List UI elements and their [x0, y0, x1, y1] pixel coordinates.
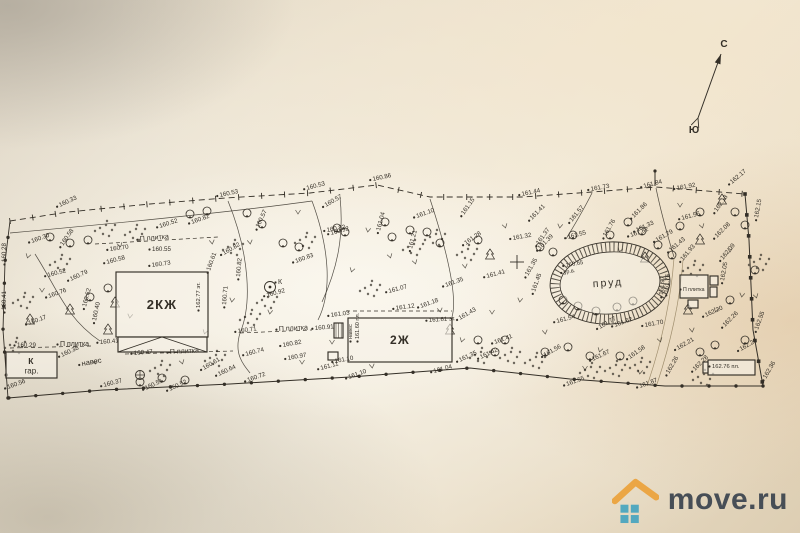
grass-mark: [229, 298, 235, 303]
elevation-label: 161.12: [395, 302, 415, 312]
shrub-dot: [373, 295, 375, 297]
move-ru-watermark: move.ru: [612, 476, 788, 524]
shrub-dot: [429, 236, 431, 238]
deciduous-tree-icon: [388, 233, 396, 241]
elevation-point-dot: [524, 276, 527, 279]
grass-mark: [300, 360, 305, 364]
elevation-label: 161.07: [388, 283, 409, 295]
elevation-label: 160.37: [103, 377, 124, 389]
elevation-point-dot: [442, 285, 445, 288]
shrub-dot: [709, 378, 711, 380]
shrub-dot: [535, 356, 537, 358]
elevation-label: 161.42: [479, 346, 500, 361]
shrub-dots: [424, 229, 446, 246]
elevation-point-dot: [263, 295, 266, 298]
deciduous-tree-icon: [104, 284, 112, 292]
elevation-label: 160.40: [91, 301, 102, 322]
shrub-dot: [435, 233, 437, 235]
elevation-point-dot: [4, 387, 7, 390]
grass-mark: [40, 288, 45, 292]
shrub-dot: [132, 237, 134, 239]
elevation-point-dot: [45, 296, 48, 299]
shrub-dot: [94, 230, 96, 232]
elevation-point-dot: [679, 288, 681, 290]
elevation-label: 162.21: [676, 336, 696, 352]
fence-tick: [147, 201, 148, 207]
survey-point-dot: [761, 384, 764, 387]
elevation-point-dot: [103, 262, 106, 265]
elevation-point-dot: [323, 230, 326, 233]
elevation-label: 162.26: [665, 355, 681, 375]
deciduous-tree-icon: [726, 296, 734, 304]
elevation-label: 162.55: [753, 310, 766, 331]
shrub-dot: [640, 361, 642, 363]
shrub-dot: [759, 258, 761, 260]
shrub-dot: [483, 362, 485, 364]
elevation-point-dot: [59, 246, 62, 249]
elevation-label: П плитка: [170, 347, 200, 356]
shrub-dot: [236, 254, 238, 256]
site-plan-svg: пруд2КЖ2ЖКгар.160.33160.53160.52160.8216…: [0, 0, 800, 533]
elevation-point-dot: [237, 278, 239, 280]
elevation-label: 160.76: [47, 287, 68, 300]
shrub-dot: [4, 347, 6, 349]
survey-point-dot: [277, 379, 280, 382]
elevation-label: П плитка: [140, 233, 170, 243]
elevation-point-dot: [755, 219, 758, 222]
elevation-label: 161.92: [676, 182, 696, 192]
shrub-dot: [762, 269, 764, 271]
shrub-dot: [643, 372, 645, 374]
survey-point-dot: [680, 384, 683, 387]
shrub-dot: [239, 319, 241, 321]
fence-tick: [55, 211, 56, 217]
elevation-point-dot: [244, 380, 247, 383]
elevation-point-dot: [83, 308, 86, 311]
elevation-label: 160.82: [282, 339, 302, 349]
elevation-label: 162.36: [762, 360, 778, 380]
grass-mark: [330, 340, 335, 344]
shrub-dot: [242, 243, 244, 245]
elevation-point-dot: [223, 306, 225, 308]
elevation-label: 160.58: [106, 254, 127, 266]
elevation-point-dot: [274, 281, 276, 283]
elevation-point-dot: [665, 374, 668, 377]
shrub-dot: [682, 270, 684, 272]
elevation-label: 161.11: [320, 360, 340, 372]
survey-point-dot: [492, 369, 495, 372]
grass-mark: [462, 264, 468, 269]
deciduous-tree-icon: [186, 210, 194, 218]
grass-mark: [459, 337, 465, 342]
elevation-label: 160.62: [81, 287, 93, 308]
fence-tick: [330, 188, 331, 194]
elevation-point-dot: [626, 358, 629, 361]
shrub-dot: [768, 258, 770, 260]
compass-north-label: С: [720, 39, 727, 50]
survey-point-square: [757, 359, 761, 363]
elevation-label: 161.35: [444, 276, 465, 289]
shrub-dot: [66, 263, 68, 265]
elevation-label: 161.18: [419, 297, 440, 310]
deciduous-tree-icon: [731, 208, 739, 216]
shrub-dot: [305, 236, 307, 238]
elevation-label: 160.28: [1, 243, 8, 262]
shrub-dot: [541, 361, 543, 363]
elevation-label: 160.55: [152, 246, 171, 253]
elevation-point-dot: [327, 315, 329, 317]
survey-point-dot: [1, 327, 4, 330]
elevation-point-dot: [369, 179, 372, 182]
shrub-dot: [161, 360, 163, 362]
elevation-point-dot: [653, 240, 656, 243]
elevation-point-dot: [627, 235, 630, 238]
shrub-dot: [700, 382, 702, 384]
survey-point-dot: [626, 382, 629, 385]
elevation-point-dot: [188, 222, 191, 225]
shrub-dot: [99, 227, 101, 229]
shrub-dots: [94, 220, 116, 237]
shrub-dot: [419, 248, 421, 250]
grass-mark: [267, 310, 273, 315]
grid-cross-icon: [510, 255, 524, 269]
elevation-point-dot: [148, 265, 150, 267]
shrub-dot: [587, 375, 589, 377]
elevation-label: 160.83: [294, 252, 315, 265]
shrub-dot: [649, 361, 651, 363]
shrub-dot: [166, 369, 168, 371]
elevation-point-dot: [216, 195, 219, 198]
shrub-dot: [16, 337, 18, 339]
fence-line: [745, 194, 763, 386]
elevation-point-dot: [460, 215, 463, 218]
survey-point-dot: [34, 394, 37, 397]
house-2kzh: 2КЖ: [116, 272, 208, 337]
elevation-label: 161.10: [347, 368, 368, 381]
shrub-dot: [111, 229, 113, 231]
shrub-dot: [604, 370, 606, 372]
building-outline: [710, 276, 718, 285]
elevation-label: 160.73: [151, 259, 171, 269]
elevation-point-dot: [275, 328, 277, 330]
elevation-label: 160.33: [58, 194, 79, 209]
shrub-dot: [646, 366, 648, 368]
shrub-dot: [105, 224, 107, 226]
elevation-point-dot: [322, 205, 325, 208]
elevation-label: 160.58: [59, 227, 76, 247]
survey-point-dot: [3, 282, 6, 285]
elevation-label: 160.51: [144, 377, 165, 392]
deciduous-tree-icon: [549, 248, 557, 256]
shrub-dot: [513, 362, 515, 364]
pavilion-annex-2: [710, 287, 717, 297]
survey-point-dot: [734, 384, 737, 387]
survey-point-dot: [6, 236, 9, 239]
pavilion-annex-1: [710, 276, 718, 285]
elevation-label: 161.76: [602, 218, 618, 238]
shrub-dot: [364, 287, 366, 289]
shrub-dot: [144, 228, 146, 230]
elevation-point-dot: [130, 353, 132, 355]
elevation-label: 161.93: [679, 243, 697, 262]
elevation-point-dot: [200, 368, 203, 371]
elevation-label: 161.56: [681, 210, 702, 222]
elevation-label: 160.79: [69, 268, 90, 283]
shrub-dot: [247, 322, 249, 324]
elevation-point-dot: [611, 325, 614, 328]
elevation-point-dot: [678, 218, 681, 221]
shrub-dot: [432, 242, 434, 244]
elevation-point-dot: [28, 241, 31, 244]
shrub-dot: [311, 241, 313, 243]
fence-tick: [376, 182, 377, 188]
grass-mark: [502, 223, 508, 228]
fence-tick: [32, 215, 33, 221]
shrub-dot: [510, 351, 512, 353]
shrub-dot: [12, 302, 14, 304]
grass-mark: [678, 203, 683, 207]
shrub-dot: [470, 259, 472, 261]
shrub-dot: [264, 305, 266, 307]
house-2zh-porch: [334, 323, 343, 338]
elevation-label: 161.04: [375, 211, 387, 232]
elevation-label: 161.55: [567, 229, 588, 241]
elevation-label: 161.70: [644, 319, 664, 329]
shrub-dot: [624, 364, 626, 366]
shrub-dot: [129, 231, 131, 233]
grass-mark: [296, 210, 301, 214]
shrub-dot: [141, 233, 143, 235]
compass: СЮ: [689, 39, 728, 136]
survey-point-dot: [599, 380, 602, 383]
grass-mark: [657, 337, 663, 342]
elevation-label: 161.82: [629, 226, 650, 239]
shrub-dot: [516, 356, 518, 358]
shrub-dot: [256, 318, 258, 320]
shrub-dot: [504, 354, 506, 356]
shrub-dot: [371, 280, 373, 282]
elevation-point-dot: [518, 194, 521, 197]
elevation-point-dot: [564, 237, 567, 240]
survey-point-dot: [304, 378, 307, 381]
grass-mark: [349, 267, 355, 272]
elevation-label: 161.45: [530, 272, 543, 293]
elevation-label: 161.21: [407, 229, 419, 250]
shrub-dot: [579, 372, 581, 374]
shrub-dots: [12, 292, 34, 309]
shrub-dot: [204, 360, 206, 362]
shrub-dot: [273, 301, 275, 303]
elevation-point-dot: [292, 261, 295, 264]
survey-point-dot: [61, 392, 64, 395]
elevation-label: 160.70: [109, 243, 129, 253]
shrub-dot: [367, 293, 369, 295]
elevation-point-dot: [234, 331, 236, 333]
shrub-dot: [9, 344, 11, 346]
shrub-dot: [20, 305, 22, 307]
shrub-dot: [209, 357, 211, 359]
elevation-point-dot: [477, 357, 480, 360]
elevation-label: 161.56: [543, 343, 563, 359]
elevation-point-dot: [317, 368, 320, 371]
elevation-point-dot: [602, 237, 605, 240]
elevation-point-dot: [563, 384, 566, 387]
move-ru-wordmark: move.ru: [668, 483, 788, 517]
elevation-point-dot: [215, 374, 218, 377]
shrub-dot: [464, 257, 466, 259]
elevation-label: 162.77 эт.: [196, 282, 202, 308]
shrub-dots: [499, 347, 521, 364]
elevation-label: 162.76 пл.: [712, 364, 740, 370]
shrub-dot: [259, 313, 261, 315]
elevation-point-dot: [58, 355, 61, 358]
shrub-dot: [641, 357, 643, 359]
elevation-label: 162.05: [719, 261, 729, 281]
elevation-label: 160.56: [6, 378, 27, 391]
survey-point-dot: [411, 371, 414, 374]
shrub-dot: [693, 264, 695, 266]
shrub-dot: [444, 233, 446, 235]
elevation-point-dot: [197, 309, 199, 311]
shrub-dot: [461, 251, 463, 253]
elevation-point-dot: [413, 216, 416, 219]
shrub-dot: [612, 373, 614, 375]
shrub-dot: [250, 313, 252, 315]
elevation-point-dot: [392, 308, 394, 310]
elevation-point-dot: [3, 263, 5, 265]
grass-mark: [542, 330, 548, 335]
elevation-point-dot: [702, 315, 705, 318]
elevation-label: 161.41: [528, 203, 547, 222]
deciduous-tree-icon: [616, 352, 624, 360]
elevation-point-dot: [456, 360, 459, 363]
grass-mark: [387, 253, 393, 258]
shrub-dot: [410, 252, 412, 254]
shrub-dot: [590, 366, 592, 368]
shrub-dot: [596, 371, 598, 373]
shrub-dot: [124, 234, 126, 236]
shrub-dot: [519, 351, 521, 353]
shrub-dot: [402, 249, 404, 251]
elevation-point-dot: [156, 226, 159, 229]
elevation-point-dot: [93, 322, 96, 325]
elevation-label: 161.32: [512, 232, 532, 242]
shrub-dot: [529, 359, 531, 361]
survey-point-square: [747, 234, 751, 238]
shrub-dot: [359, 290, 361, 292]
elevation-point-dot: [96, 342, 98, 344]
shrub-dot: [376, 289, 378, 291]
elevation-label: 160.47: [134, 348, 154, 357]
shrub-dot: [234, 239, 236, 241]
elevation-point-dot: [596, 327, 599, 330]
elevation-label: П плитка: [683, 287, 705, 293]
elevation-label: 160.30: [30, 232, 51, 245]
house-window-square: [620, 505, 628, 513]
survey-point-dot: [546, 375, 549, 378]
photo-background: пруд2КЖ2ЖКгар.160.33160.53160.52160.8216…: [0, 0, 800, 533]
survey-point-dot: [196, 384, 199, 387]
elevation-label: К: [278, 279, 283, 286]
shrub-dot: [692, 379, 694, 381]
elevation-label: 162.17: [729, 168, 748, 186]
shrub-dot: [424, 239, 426, 241]
survey-point-dot: [115, 388, 118, 391]
shrub-dot: [106, 220, 108, 222]
shrub-dot: [306, 232, 308, 234]
shrub-dot: [436, 229, 438, 231]
conifer-tree-icon: [104, 324, 113, 334]
elevation-label: 160.29: [17, 342, 36, 349]
elevation-point-dot: [148, 248, 150, 250]
grass-mark: [557, 224, 563, 229]
survey-point-dot: [88, 389, 91, 392]
elevation-label: 161.84: [643, 178, 664, 190]
grass-mark: [490, 310, 495, 314]
elevation-point-dot: [377, 232, 380, 235]
compass-arrowhead: [715, 54, 721, 64]
shrub-dots: [294, 232, 316, 249]
shrub-dot: [61, 254, 63, 256]
shrub-dot: [314, 236, 316, 238]
elevation-point-dot: [462, 244, 465, 247]
elevation-point-dot: [44, 275, 47, 278]
elevation-point-dot: [721, 282, 724, 285]
survey-point-square: [745, 213, 749, 217]
shrub-dot: [256, 302, 258, 304]
elevation-label: 160.86: [372, 172, 393, 183]
shrub-dot: [215, 354, 217, 356]
shrub-dot: [218, 365, 220, 367]
shrub-dot: [114, 224, 116, 226]
elevation-point-dot: [553, 321, 556, 324]
elevation-point-dot: [531, 292, 534, 295]
elevation-label: 160.71: [237, 325, 257, 335]
conifer-tree-icon: [486, 249, 495, 259]
elevation-point-dot: [417, 306, 420, 309]
elevation-point-dot: [636, 386, 639, 389]
elevation-label: 160.53: [306, 180, 327, 192]
elevation-label: 160.52: [47, 267, 68, 279]
grass-mark: [739, 293, 745, 298]
elevation-label: 162.15: [753, 198, 763, 218]
survey-point-square: [749, 276, 753, 280]
shrub-dot: [251, 309, 253, 311]
compass-south-label: Ю: [689, 125, 699, 136]
house-roof-shape: [615, 482, 656, 501]
shrub-dot: [32, 296, 34, 298]
survey-point-square: [751, 318, 755, 322]
elevation-point-dot: [641, 325, 644, 328]
shrub-dot: [697, 376, 699, 378]
survey-point-dot: [384, 373, 387, 376]
shrub-dot: [49, 264, 51, 266]
fence-tick: [78, 208, 79, 214]
shrub-dot: [765, 263, 767, 265]
elevation-point-dot: [166, 389, 169, 392]
shrub-dot: [135, 228, 137, 230]
elevation-label: 160.61: [202, 356, 222, 372]
elevation-label: 160.61: [205, 251, 218, 272]
elevation-label: 162.09: [719, 242, 737, 261]
shrub-dots: [359, 280, 381, 297]
elevation-label: 161.79: [655, 228, 675, 244]
elevation-point-dot: [674, 348, 677, 351]
shrub-dot: [24, 292, 26, 294]
shrub-dot: [149, 370, 151, 372]
elevation-label: 161.04: [433, 363, 454, 375]
shrub-dot: [499, 357, 501, 359]
